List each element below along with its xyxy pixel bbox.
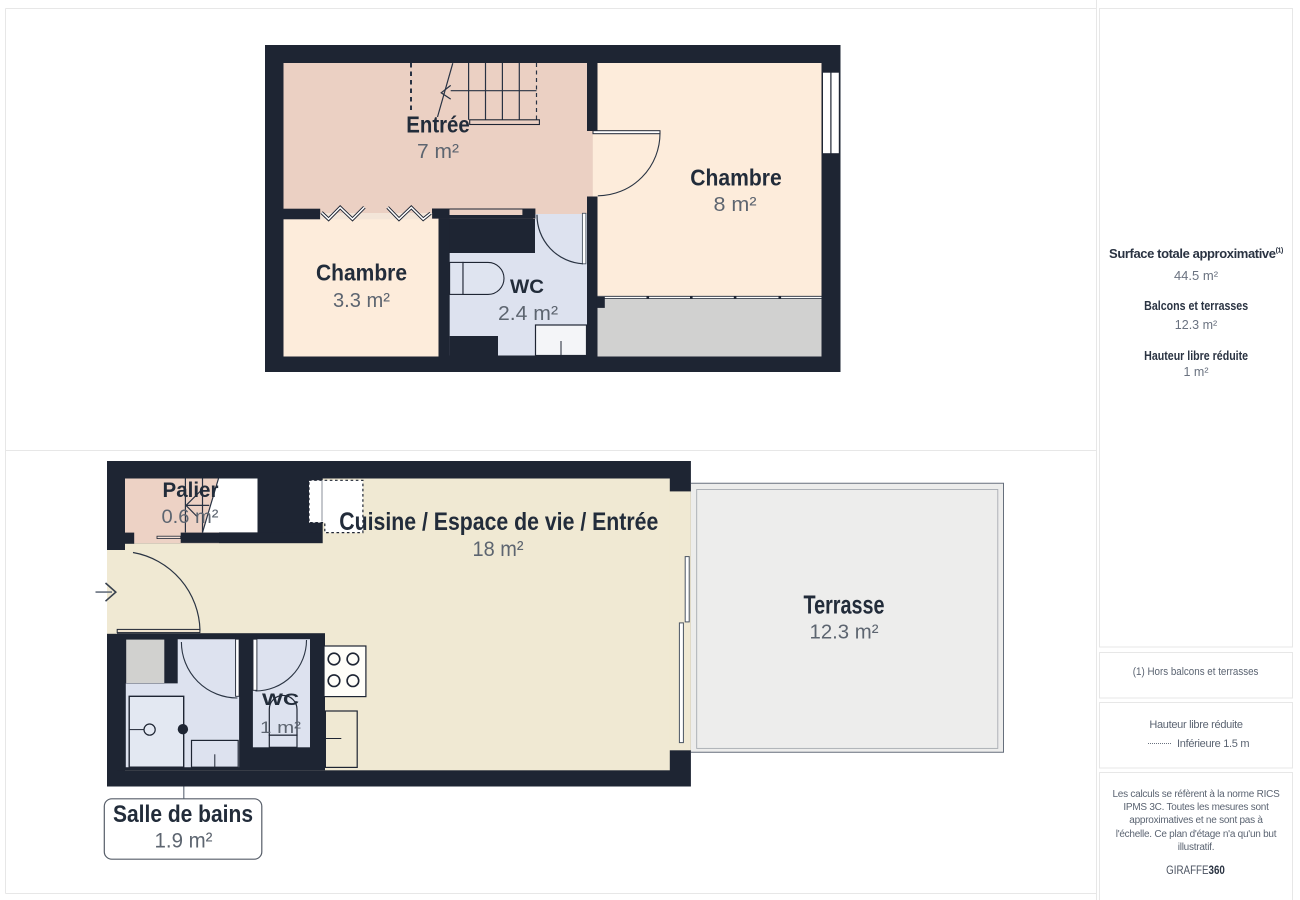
svg-text:WC: WC <box>262 690 299 709</box>
svg-text:Chambre: Chambre <box>316 260 407 286</box>
svg-text:18 m²: 18 m² <box>473 538 524 561</box>
svg-text:8 m²: 8 m² <box>714 194 757 216</box>
svg-text:Salle de bains: Salle de bains <box>113 801 253 828</box>
svg-text:7 m²: 7 m² <box>417 140 459 163</box>
svg-text:2.4 m²: 2.4 m² <box>498 303 558 325</box>
svg-text:3.3 m²: 3.3 m² <box>333 290 390 312</box>
svg-text:1.9 m²: 1.9 m² <box>155 830 213 853</box>
svg-text:Palier: Palier <box>163 479 219 502</box>
svg-text:Entrée: Entrée <box>406 112 470 138</box>
svg-text:1 m²: 1 m² <box>260 718 301 737</box>
svg-text:WC: WC <box>510 276 544 298</box>
svg-text:12.3 m²: 12.3 m² <box>810 621 879 644</box>
svg-text:Chambre: Chambre <box>690 165 781 191</box>
svg-text:Cuisine / Espace de vie / Entr: Cuisine / Espace de vie / Entrée <box>339 508 658 536</box>
svg-text:0.6 m²: 0.6 m² <box>162 506 220 528</box>
svg-text:Terrasse: Terrasse <box>804 590 885 620</box>
